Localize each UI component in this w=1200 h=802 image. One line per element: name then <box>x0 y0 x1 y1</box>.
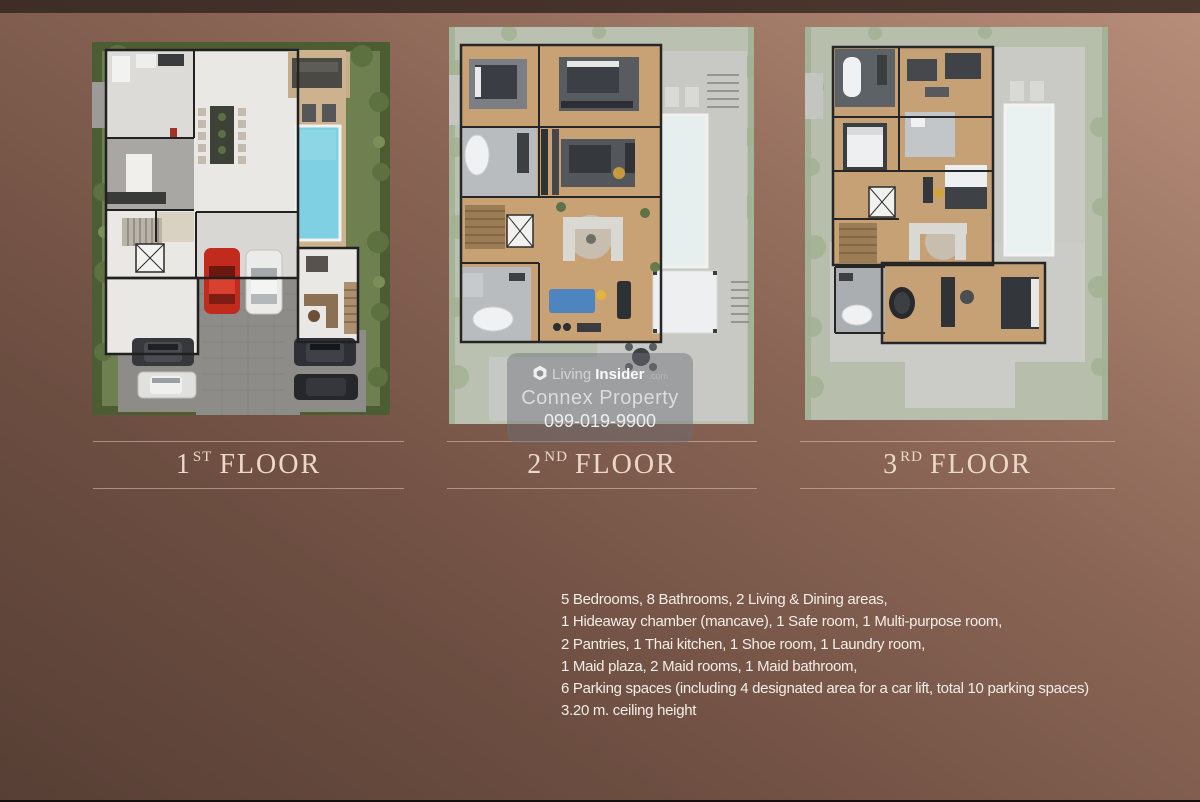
detail-line-parking: 6 Parking spaces (including 4 designated… <box>561 678 1089 700</box>
floor-2-label-group: 2NDFLOOR <box>447 441 757 489</box>
watermark-phone: 099-019-9900 <box>544 411 656 432</box>
detail-line-kitchen: 2 Pantries, 1 Thai kitchen, 1 Shoe room,… <box>561 634 1089 656</box>
floor-ordinal: ND <box>544 450 568 465</box>
floor-ordinal: ST <box>193 450 213 465</box>
detail-line-bedrooms: 5 Bedrooms, 8 Bathrooms, 2 Living & Dini… <box>561 589 1089 611</box>
floor-3-label: 3RDFLOOR <box>800 442 1115 488</box>
floor-number: 3 <box>883 449 899 481</box>
floor-1-label: 1STFLOOR <box>93 442 404 488</box>
detail-line-ceiling: 3.20 m. ceiling height <box>561 700 1089 722</box>
floor-word: FLOOR <box>930 449 1032 481</box>
watermark-company: Connex Property <box>521 387 679 410</box>
floor-number: 1 <box>176 449 192 481</box>
floor-ordinal: RD <box>900 450 923 465</box>
brand-text-insider: Insider <box>595 367 644 382</box>
brand-text-living: Living <box>552 367 591 382</box>
top-border-band <box>0 0 1200 13</box>
floor-2-label: 2NDFLOOR <box>447 442 757 488</box>
divider-line-bottom <box>93 488 404 489</box>
divider-line-bottom <box>447 488 757 489</box>
floor-number: 2 <box>527 449 543 481</box>
divider-line-bottom <box>800 488 1115 489</box>
watermark-brand: LivingInsider.com <box>532 365 668 382</box>
floor-plan-3-image <box>805 27 1108 420</box>
floor-word: FLOOR <box>575 449 677 481</box>
floor-3-label-group: 3RDFLOOR <box>800 441 1115 489</box>
detail-line-special-rooms: 1 Hideaway chamber (mancave), 1 Safe roo… <box>561 611 1089 633</box>
property-details: 5 Bedrooms, 8 Bathrooms, 2 Living & Dini… <box>561 589 1089 723</box>
watermark-card: LivingInsider.com Connex Property 099-01… <box>507 353 693 443</box>
detail-line-maid: 1 Maid plaza, 2 Maid rooms, 1 Maid bathr… <box>561 656 1089 678</box>
floor-1-label-group: 1STFLOOR <box>93 441 404 489</box>
brand-text-tld: .com <box>648 372 668 382</box>
floor-plan-1-image <box>92 42 390 415</box>
floor-word: FLOOR <box>219 449 321 481</box>
living-insider-logo-icon <box>532 365 548 381</box>
brochure-page: 1STFLOOR 2NDFLOOR 3RDFLOOR LivingInsider… <box>0 0 1200 802</box>
